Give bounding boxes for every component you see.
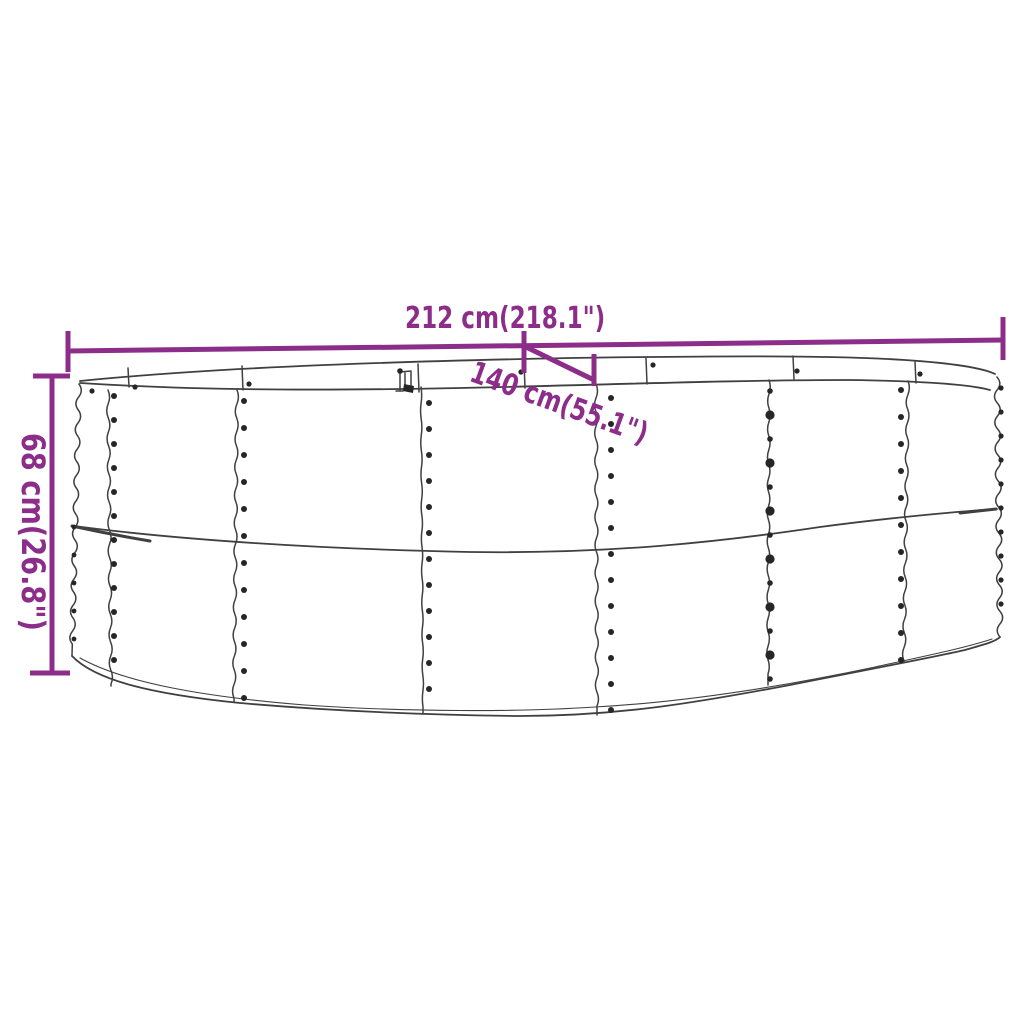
panel-seam-1: [107, 390, 113, 686]
rivet-column-seam-4: [608, 395, 614, 713]
mid-seam-line: [74, 509, 997, 552]
width-dimension-label: 212 cm(218.1"): [405, 302, 605, 337]
left-corrugated-edge: [70, 384, 81, 656]
mid-seam-emphasis-right: [960, 509, 996, 513]
rivet-column-seam-2: [241, 398, 247, 701]
dimension-diagram: 212 cm(218.1") 140 cm(55.1") 68 cm(26.8"…: [0, 0, 1024, 1024]
planter-line-drawing: [0, 0, 1024, 1024]
height-dimension-label: 68 cm(26.8"): [14, 433, 51, 631]
panel-seam-6: [903, 381, 910, 662]
panel-seam-2: [233, 390, 239, 702]
rivet-column-seam-3: [426, 400, 432, 692]
bracket-foot: [403, 384, 414, 393]
bottom-edge-line: [72, 637, 1000, 716]
rivet-column-right-edge: [998, 385, 1003, 606]
